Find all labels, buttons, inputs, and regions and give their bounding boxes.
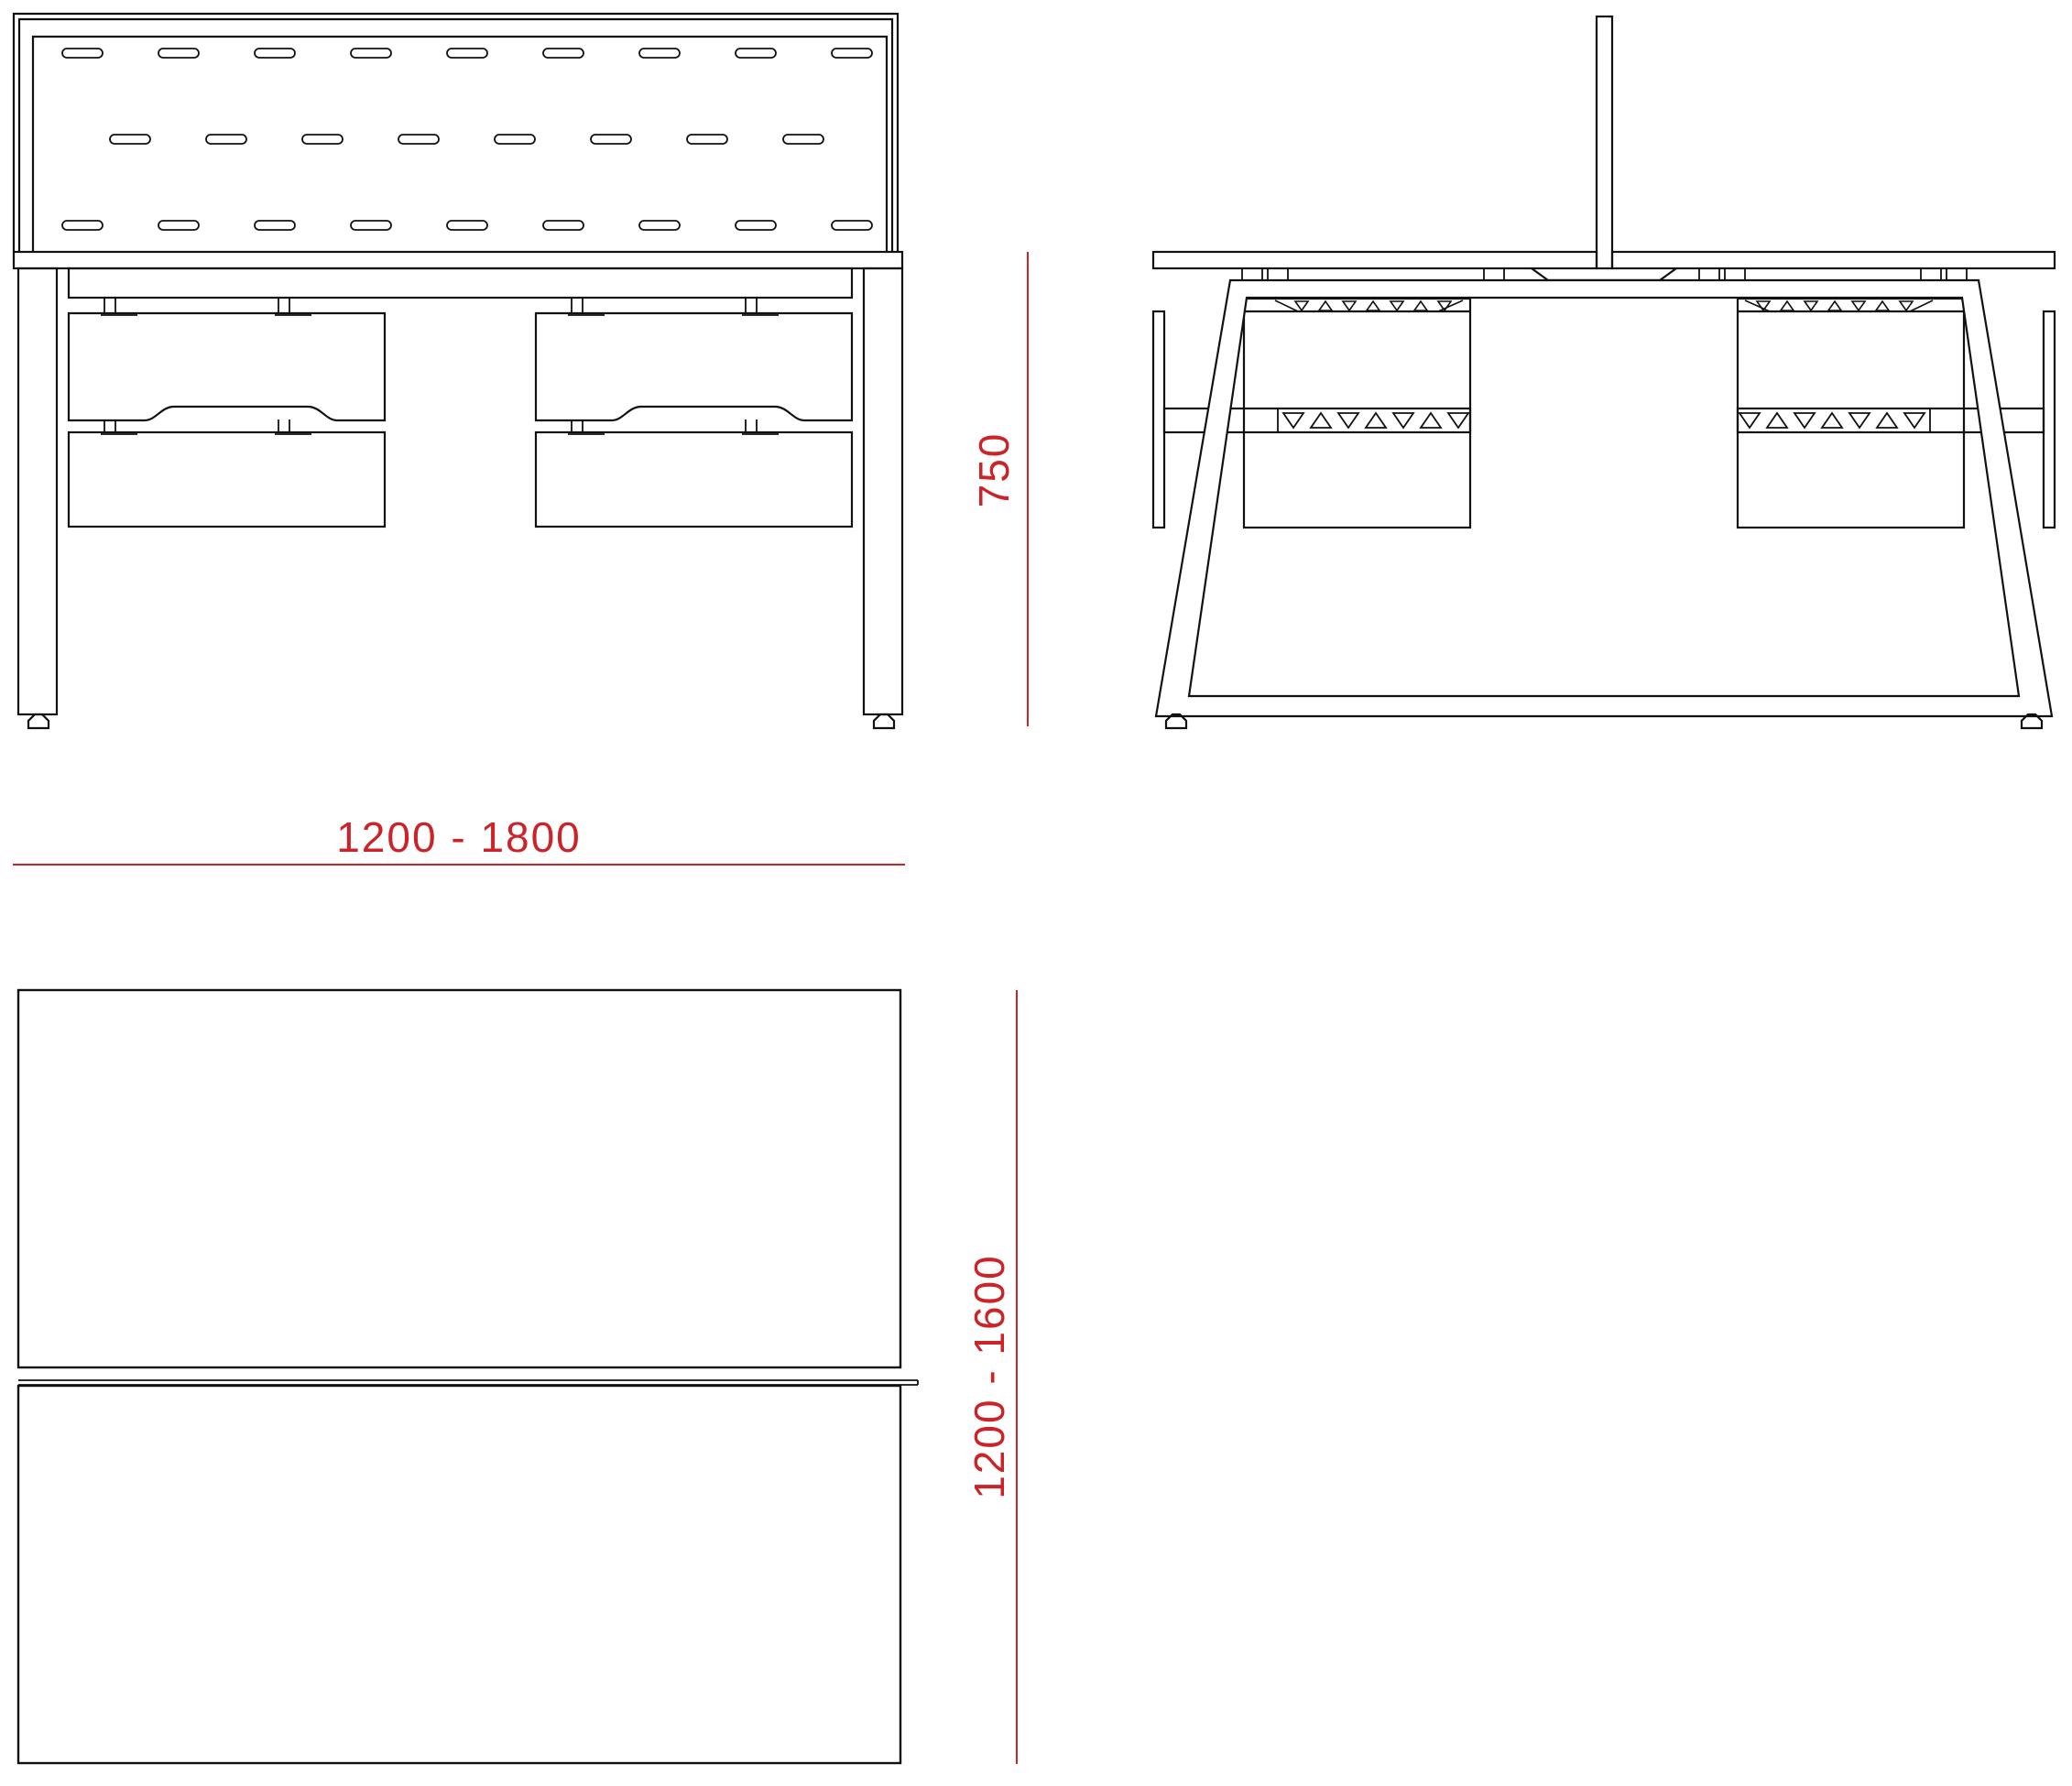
screen-slot [832, 49, 872, 58]
screen-frame-outer [14, 14, 898, 252]
left-foot-glide [28, 714, 49, 728]
screen-perforation-row-2 [110, 135, 823, 144]
front-elevation-view [14, 14, 902, 728]
top-drawer [536, 313, 852, 420]
spacer-block [1725, 268, 1745, 280]
screen-slot [110, 135, 150, 144]
screen-slot [543, 49, 583, 58]
desktop-side-right [1612, 252, 2055, 268]
screen-slot [302, 135, 343, 144]
screen-slot [351, 221, 391, 230]
screen-perforation-row-3 [62, 221, 872, 230]
desktop-plan-top [18, 990, 900, 1367]
screen-slot [639, 221, 680, 230]
screen-slot [351, 49, 391, 58]
top-drawer [69, 313, 385, 420]
screen-slot [62, 221, 103, 230]
left-leg [18, 268, 57, 714]
plan-view [18, 990, 918, 1763]
spacer-block [1268, 268, 1288, 280]
drawer-front-edge [1153, 311, 1164, 528]
drawer-hangers [101, 298, 779, 434]
screen-slot [158, 221, 199, 230]
screen-slot [736, 49, 776, 58]
screen-slot [591, 135, 631, 144]
screen-slot [255, 221, 295, 230]
screen-slot [398, 135, 439, 144]
spacer-block [1699, 268, 1719, 280]
screen-slot [783, 135, 823, 144]
desk-technical-drawing [0, 0, 2072, 1786]
screen-panel-edge [33, 37, 887, 252]
screen-slot [158, 49, 199, 58]
privacy-screen-edge [1597, 16, 1612, 268]
under-desk-rail [69, 268, 852, 298]
right-leg [864, 268, 902, 714]
screen-slot [495, 135, 535, 144]
screen-slot [62, 49, 103, 58]
screen-slot [206, 135, 246, 144]
screen-slot [255, 49, 295, 58]
screen-slot [447, 49, 487, 58]
depth-dimension-label: 1200 - 1600 [965, 1254, 1014, 1499]
desktop-side-left [1153, 252, 1597, 268]
spacer-block [1921, 268, 1941, 280]
bottom-drawer [69, 432, 385, 527]
screen-perforation-row-1 [62, 49, 872, 58]
privacy-screen-plan [18, 1380, 918, 1385]
depth-dimension-line [1016, 990, 1018, 1764]
right-foot-glide [874, 714, 894, 728]
screen-slot [543, 221, 583, 230]
screen-mount-bracket [1532, 268, 1676, 280]
width-dimension-line [13, 864, 905, 866]
spacer-block [1484, 268, 1504, 280]
desktop-spacers [1242, 268, 1967, 280]
drawing-canvas: 750 1200 - 1800 1200 - 1600 [0, 0, 2072, 1786]
desktop-front [14, 252, 902, 268]
screen-slot [687, 135, 727, 144]
screen-slot [639, 49, 680, 58]
side-elevation-view [1153, 16, 2055, 728]
spacer-block [1242, 268, 1262, 280]
screen-slot [447, 221, 487, 230]
desktop-plan-bottom [18, 1386, 900, 1763]
a-frame-leg [1156, 280, 2052, 716]
screen-slot [736, 221, 776, 230]
height-dimension-line [1027, 252, 1029, 726]
screen-slot [832, 221, 872, 230]
bottom-drawer [536, 432, 852, 527]
pedestal-top-vents [1275, 300, 1463, 311]
spacer-block [1947, 268, 1967, 280]
width-dimension-label: 1200 - 1800 [336, 812, 582, 862]
height-dimension-label: 750 [969, 432, 1019, 508]
screen-frame-inner [19, 19, 892, 252]
